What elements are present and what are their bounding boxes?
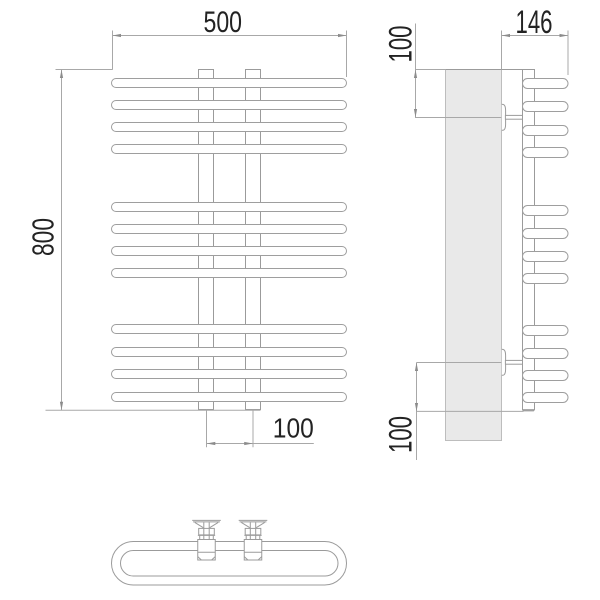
svg-text:100: 100	[383, 26, 419, 63]
svg-text:800: 800	[26, 218, 61, 256]
svg-text:146: 146	[516, 4, 553, 40]
svg-text:100: 100	[273, 413, 314, 444]
svg-text:500: 500	[204, 6, 243, 39]
svg-text:100: 100	[383, 416, 419, 453]
